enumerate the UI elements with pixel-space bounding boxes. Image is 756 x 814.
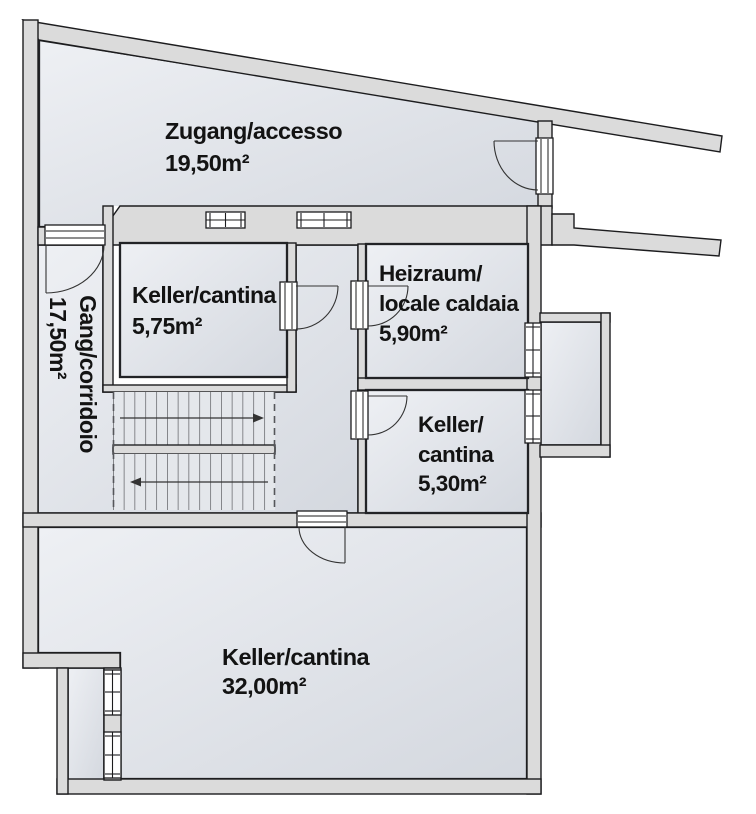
wall-band-upper (38, 206, 552, 245)
room-label-zugang: Zugang/accesso (165, 118, 342, 144)
window-keller575-top (206, 212, 245, 228)
lightwell-right-area (540, 322, 601, 445)
window-keller3200-left-upper (104, 670, 121, 715)
wall-shaft-right (601, 313, 610, 457)
window-keller530-right (525, 390, 541, 443)
room-area-heizraum-label: 5,90m² (379, 321, 448, 346)
stair-divider (113, 445, 275, 454)
room-area-gang-label: 17,50m² (45, 297, 71, 380)
wall-left-outer (23, 20, 38, 668)
staircase (113, 392, 275, 510)
wall-shaft-bottom (540, 445, 610, 457)
room-area-keller-575 (120, 243, 287, 377)
room-label-keller3200: Keller/cantina (222, 644, 371, 670)
floor-plan: Zugang/accesso 19,50m² Gang/corridoio 17… (0, 0, 756, 814)
window-stairhall-top (297, 212, 351, 228)
room-label-heizraum-line2: locale caldaia (379, 291, 519, 316)
room-label-keller575: Keller/cantina (132, 282, 277, 308)
room-label-gang: Gang/corridoio (75, 295, 101, 453)
window-keller3200-left-lower (104, 732, 121, 778)
wall-keller575-bottom (103, 385, 296, 392)
wall-wedge-right (552, 214, 721, 256)
wall-heizraum-bottom (358, 378, 541, 390)
wall-bottom-outer (57, 779, 541, 794)
wall-bigroom-top (23, 513, 541, 527)
room-label-keller530-line1: Keller/ (418, 412, 485, 437)
room-label-keller530-line2: cantina (418, 442, 494, 467)
room-area-keller3200-label: 32,00m² (222, 673, 307, 699)
lightwell-left-area (68, 668, 104, 780)
wall-shaft-top (540, 313, 610, 322)
room-area-keller575-label: 5,75m² (132, 313, 203, 339)
floor-plan-canvas: Zugang/accesso 19,50m² Gang/corridoio 17… (0, 0, 756, 814)
room-area-zugang-label: 19,50m² (165, 150, 250, 176)
window-heizraum-right (525, 323, 541, 377)
wall-notch-band (23, 653, 120, 668)
wall-lightwell-left (57, 668, 68, 794)
room-area-keller530-label: 5,30m² (418, 471, 487, 496)
room-label-heizraum-line1: Heizraum/ (379, 261, 483, 286)
